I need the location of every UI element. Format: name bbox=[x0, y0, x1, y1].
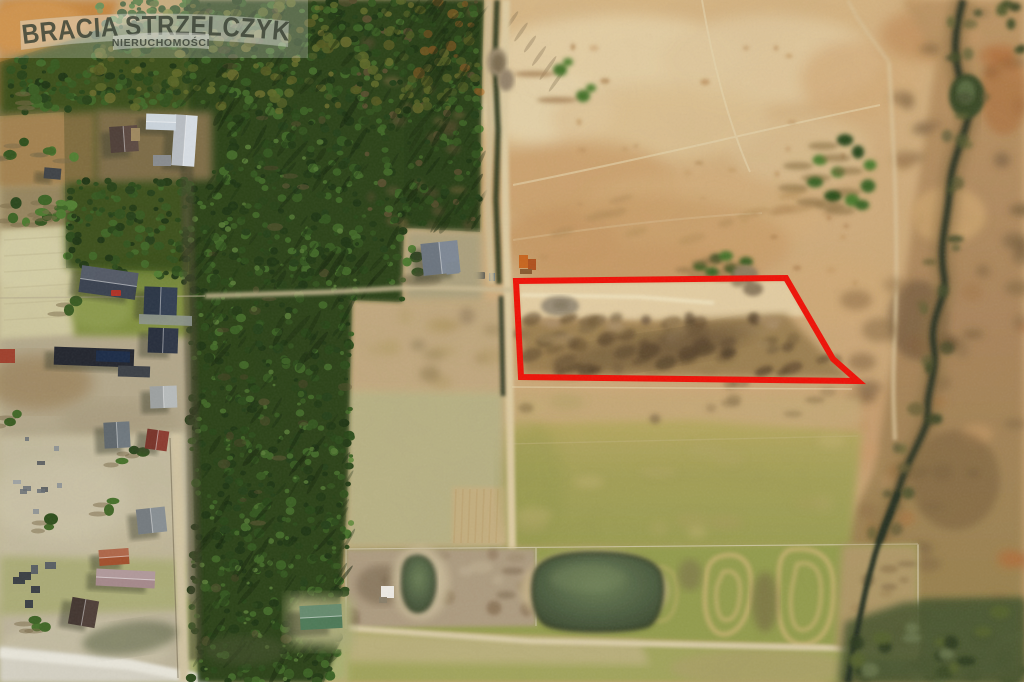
svg-text:NIERUCHOMOŚCI: NIERUCHOMOŚCI bbox=[112, 36, 210, 49]
